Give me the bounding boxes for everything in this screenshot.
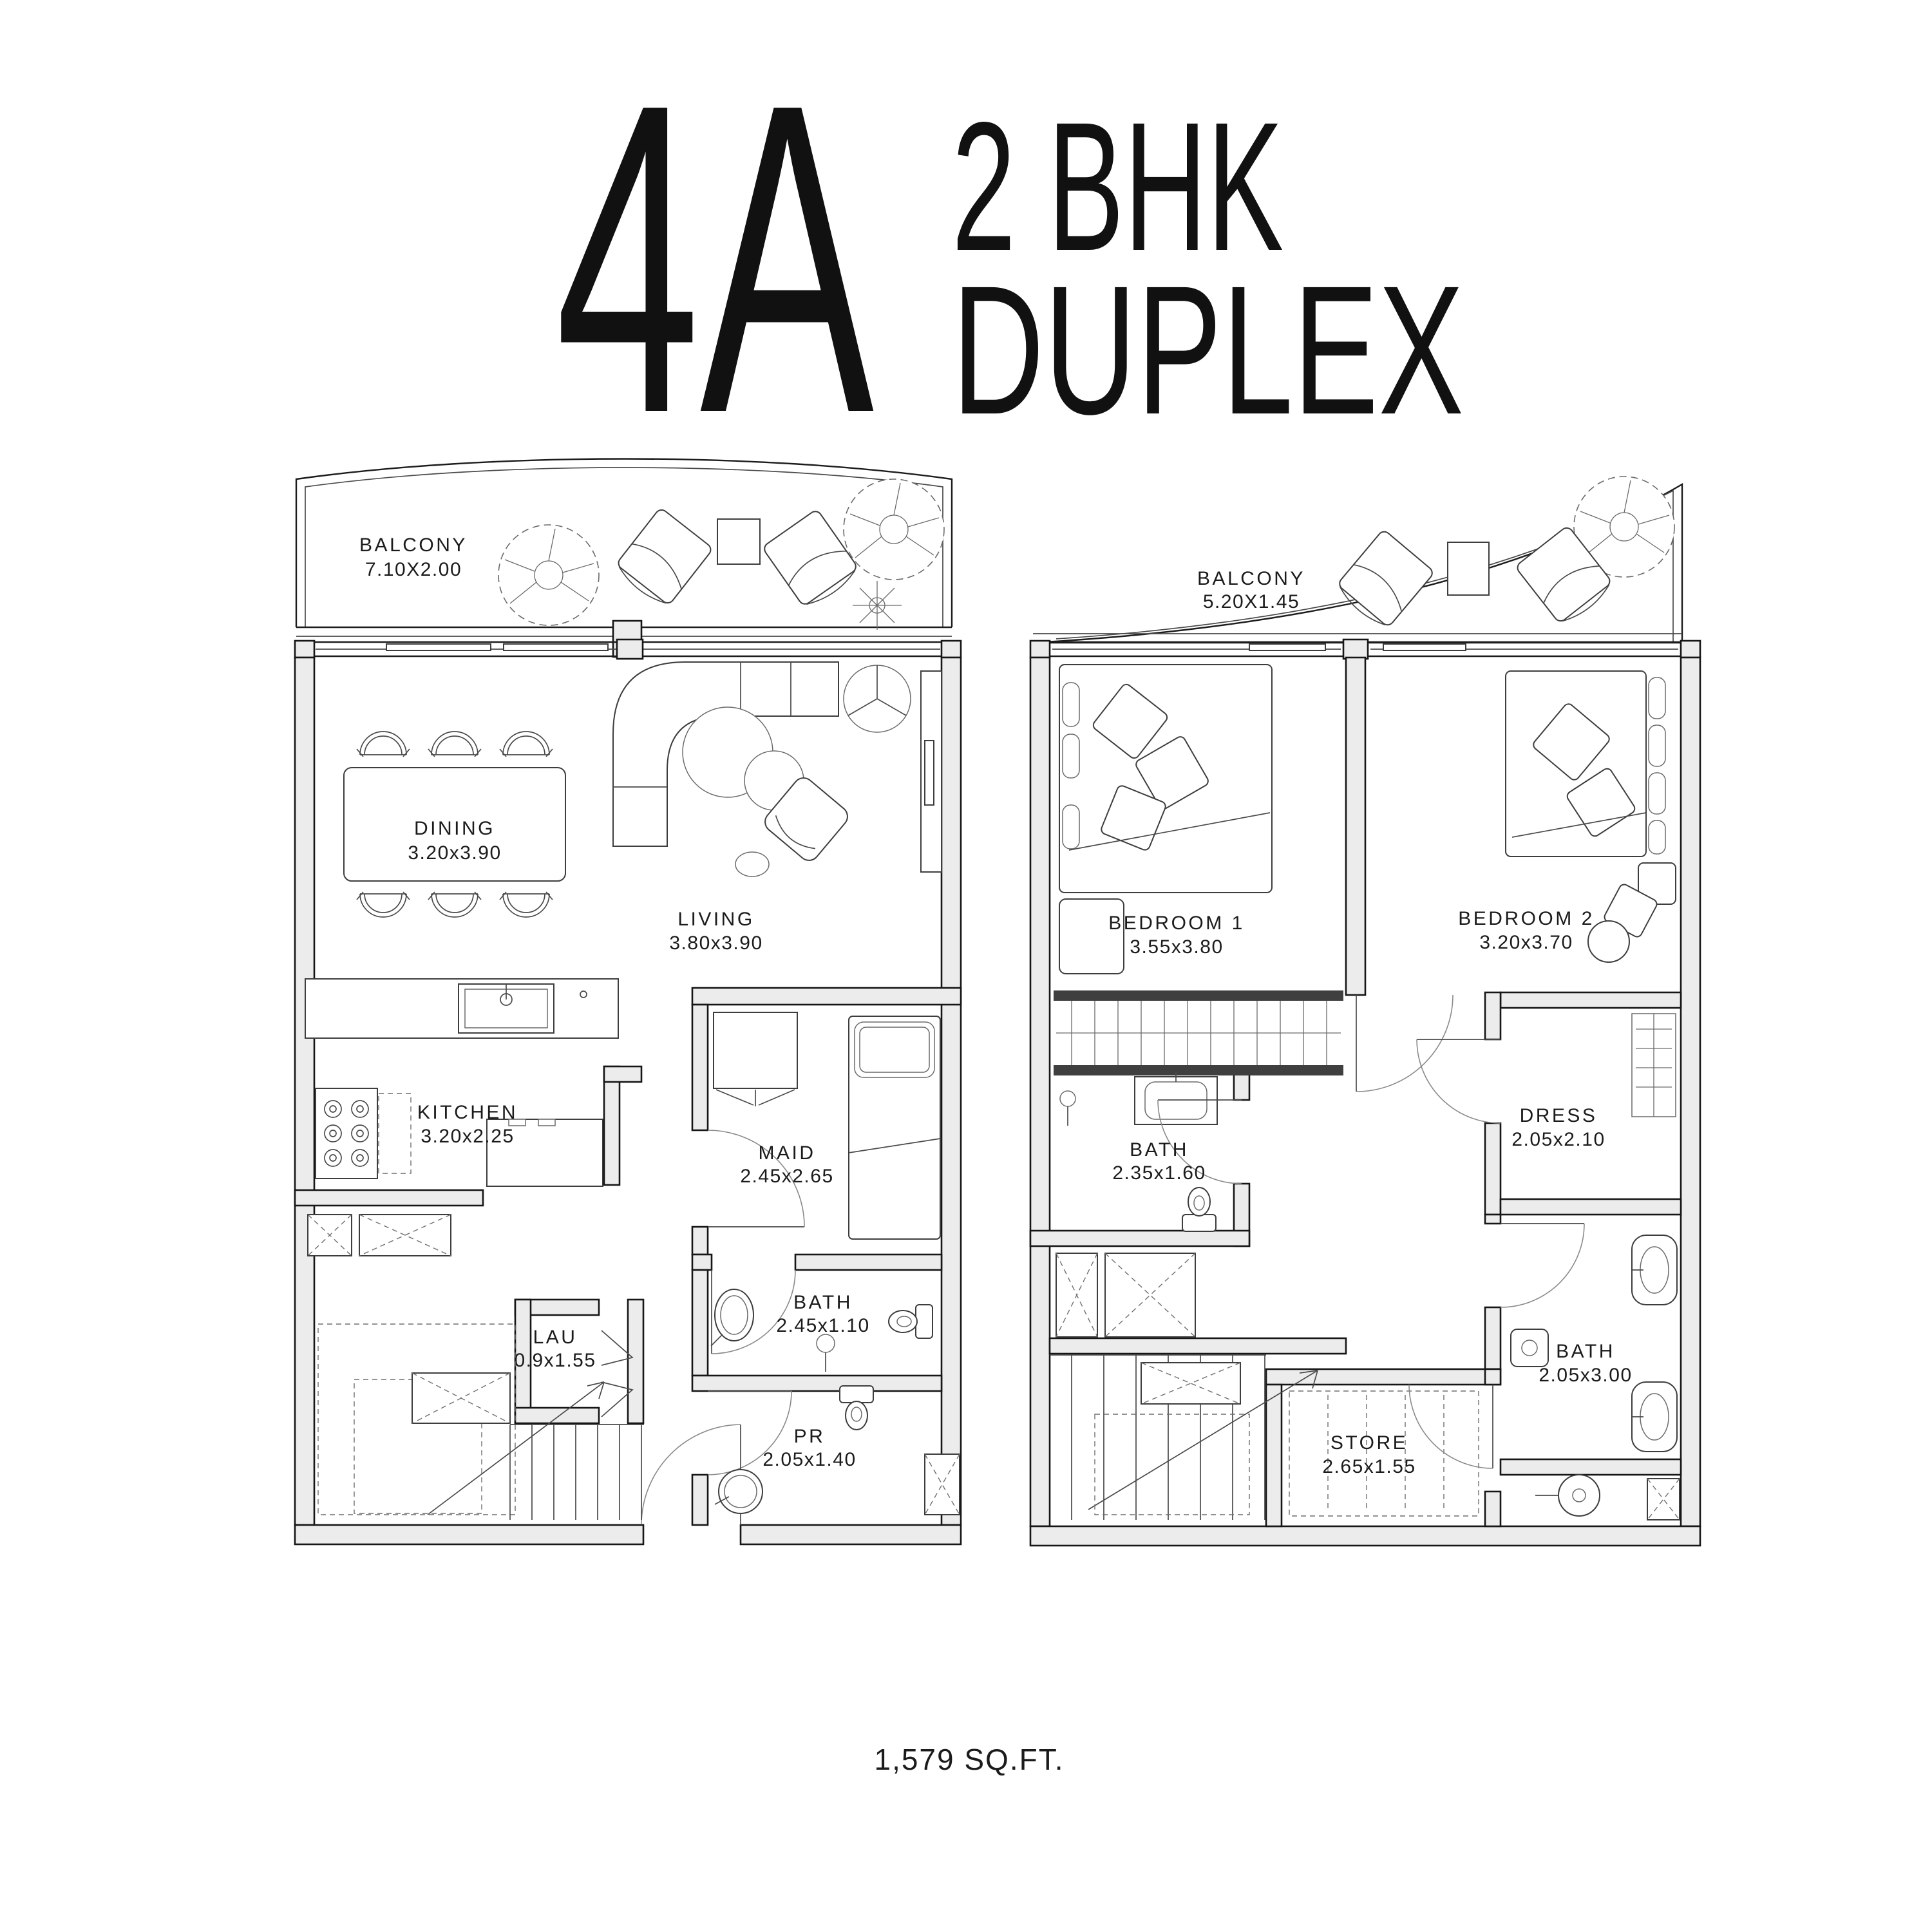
room-dims-balcony-2: 5.20X1.45 xyxy=(1203,591,1300,612)
double-sink xyxy=(1632,1235,1677,1452)
laundry-sink xyxy=(1535,1475,1600,1516)
bedroom1-closet xyxy=(1054,990,1343,1075)
room-label-balcony-1: BALCONY xyxy=(359,535,468,556)
room-dims-dining: 3.20x3.90 xyxy=(408,842,501,864)
room-label-bath2-lower: BATH xyxy=(1556,1341,1615,1362)
floorplan-page: 4A 2 BHK DUPLEX BALCONY 7.10X2.00 xyxy=(0,0,1932,1932)
title-block: 4A 2 BHK DUPLEX xyxy=(555,13,1464,505)
room-label-living: LIVING xyxy=(677,909,754,930)
room-label-bath2-upper: BATH xyxy=(1130,1139,1189,1160)
room-dims-bath2-lower: 2.05x3.00 xyxy=(1539,1365,1632,1386)
floor1-shafts xyxy=(308,1215,451,1256)
floor2-shafts xyxy=(1056,1253,1195,1337)
floor2-doors xyxy=(1356,995,1584,1307)
bedside-table xyxy=(1059,899,1124,974)
room-label-powder: PR xyxy=(794,1426,826,1447)
lounge-chair-icon xyxy=(1333,529,1434,632)
sliding-door-rail xyxy=(386,644,491,650)
floor1-plan: BALCONY 7.10X2.00 DININ xyxy=(295,459,961,1545)
balcony-table xyxy=(1448,542,1489,595)
room-dims-bath2-upper: 2.35x1.60 xyxy=(1112,1162,1206,1184)
room-dims-kitchen: 3.20x2.25 xyxy=(421,1126,514,1147)
room-label-maid: MAID xyxy=(759,1142,816,1164)
maid-room: MAID 2.45x2.65 xyxy=(714,1012,940,1239)
room-label-bedroom2: BEDROOM 2 xyxy=(1458,908,1595,929)
floorplan-canvas: 4A 2 BHK DUPLEX BALCONY 7.10X2.00 xyxy=(0,0,1932,1932)
toilet-icon xyxy=(1182,1188,1216,1231)
room-dims-store: 2.65x1.55 xyxy=(1322,1456,1416,1477)
bath-sink xyxy=(711,1289,753,1346)
room-dims-bedroom2: 3.20x3.70 xyxy=(1479,932,1573,953)
dining-area: DINING 3.20x3.90 xyxy=(344,732,565,917)
tree-icon xyxy=(844,479,944,580)
room-dims-dress: 2.05x2.10 xyxy=(1511,1129,1605,1150)
toilet-icon xyxy=(1511,1329,1548,1367)
living-area: LIVING 3.80x3.90 xyxy=(613,662,942,954)
room-dims-bedroom1: 3.55x3.80 xyxy=(1130,936,1223,958)
tv xyxy=(925,741,934,805)
stove xyxy=(316,1088,411,1179)
sliding-door-rail xyxy=(1383,644,1466,650)
room-dims-laundry: 0.9x1.55 xyxy=(514,1350,596,1371)
bedroom1: BEDROOM 1 3.55x3.80 xyxy=(1059,665,1272,974)
bedroom2: BEDROOM 2 3.20x3.70 xyxy=(1458,671,1676,962)
dress-room: DRESS 2.05x2.10 xyxy=(1511,1014,1676,1150)
room-dims-maid: 2.45x2.65 xyxy=(740,1166,833,1187)
unit-label: 4A xyxy=(555,13,875,505)
ottoman xyxy=(735,852,769,876)
pr-sink xyxy=(715,1470,762,1513)
toilet-icon xyxy=(889,1305,933,1338)
shower-icon xyxy=(1060,1091,1075,1106)
bath2-lower-room: BATH 2.05x3.00 xyxy=(1511,1235,1680,1520)
floor2-plan: BALCONY 5.20X1.45 xyxy=(1030,477,1700,1546)
balcony-table xyxy=(717,519,760,564)
room-label-kitchen: KITCHEN xyxy=(417,1102,518,1123)
area-label: 1,579 SQ.FT. xyxy=(874,1743,1064,1776)
type-line2: DUPLEX xyxy=(952,248,1464,453)
room-label-dress: DRESS xyxy=(1520,1105,1598,1126)
powder-room: PR 2.05x1.40 xyxy=(715,1386,960,1515)
bath1-room: BATH 2.45x1.10 xyxy=(711,1289,933,1372)
room-label-laundry: LAU xyxy=(533,1327,578,1348)
maid-bed xyxy=(849,1016,940,1239)
room-label-bedroom1: BEDROOM 1 xyxy=(1108,913,1245,934)
bath-sink xyxy=(1135,1072,1217,1124)
room-label-bath1: BATH xyxy=(793,1292,853,1313)
sliding-door-rail xyxy=(1249,644,1325,650)
room-dims-living: 3.80x3.90 xyxy=(669,933,762,954)
plant-icon xyxy=(853,581,902,630)
tree-icon xyxy=(498,525,599,625)
side-table xyxy=(844,665,911,732)
lounge-chair-icon xyxy=(612,507,713,610)
sliding-door-rail xyxy=(504,644,608,650)
room-dims-powder: 2.05x1.40 xyxy=(762,1449,856,1470)
store-room: STORE 2.65x1.55 xyxy=(1289,1385,1493,1516)
bath2-upper-room: BATH 2.35x1.60 xyxy=(1060,1072,1242,1231)
room-label-balcony-2: BALCONY xyxy=(1197,568,1305,589)
kitchen-area: KITCHEN 3.20x2.25 xyxy=(305,979,618,1186)
room-label-store: STORE xyxy=(1331,1432,1408,1454)
room-label-dining: DINING xyxy=(414,818,495,839)
room-dims-balcony-1: 7.10X2.00 xyxy=(365,559,462,580)
floor2-balcony: BALCONY 5.20X1.45 xyxy=(1033,477,1682,643)
room-dims-bath1: 2.45x1.10 xyxy=(776,1315,869,1336)
maid-wardrobe xyxy=(714,1012,797,1088)
toilet-icon xyxy=(840,1386,873,1430)
